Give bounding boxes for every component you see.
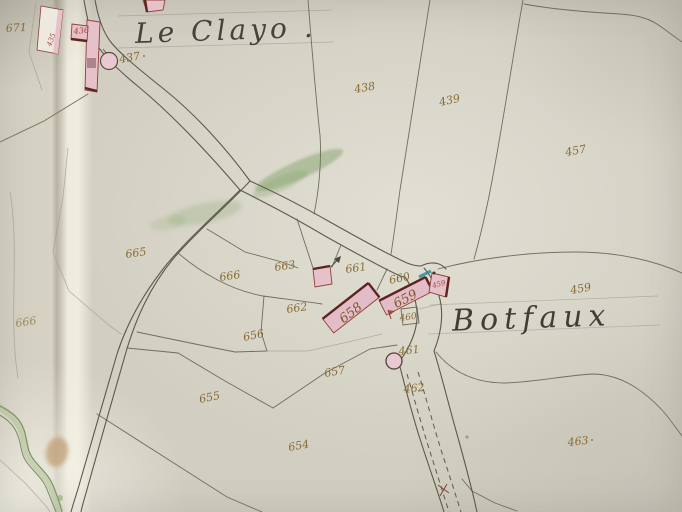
- parcel-line: [474, 0, 523, 259]
- parcel-number-label: 461: [397, 343, 420, 358]
- parcel-number-label: 463: [566, 434, 589, 449]
- parcel-line: [438, 252, 682, 273]
- parcel-line: [0, 94, 88, 142]
- map-canvas: Le Clayo . Botfaux 671 437 438 439 457 6…: [0, 0, 682, 512]
- road-edge: [81, 181, 250, 512]
- fold-crease-line: [53, 197, 121, 334]
- parcel-number-label: 438: [352, 80, 376, 97]
- paper-stain: [43, 435, 71, 469]
- pencil-line: [0, 460, 50, 512]
- parcel-number-label: 460: [398, 312, 418, 324]
- parcel-line: [97, 414, 262, 512]
- parcel-line: [178, 253, 322, 304]
- parcel-number-label: 660: [388, 270, 411, 287]
- parcel-number-label: 666: [219, 268, 242, 284]
- parcel-number-label: 671: [5, 21, 27, 35]
- fold-crease-line: [63, 148, 68, 197]
- ink-speck: [591, 439, 593, 441]
- parcel-line: [524, 4, 682, 42]
- parcel-line: [261, 296, 267, 351]
- paper-artifacts-group: [0, 10, 660, 512]
- road-edge: [240, 190, 405, 277]
- well-circle: [101, 53, 118, 70]
- parcel-line: [267, 334, 382, 351]
- cross-mark: [438, 484, 449, 496]
- building-number-smudge: [87, 58, 96, 68]
- parcel-line: [297, 219, 313, 268]
- parcel-line: [419, 304, 440, 309]
- parcel-number-label: 657: [323, 364, 346, 380]
- parcel-number-label: 654: [287, 438, 310, 454]
- parcel-number-label: 661: [345, 260, 368, 276]
- ink-dot: [433, 272, 436, 275]
- parcel-number-label: 459: [568, 281, 592, 298]
- parcel-number-label: 655: [198, 389, 221, 406]
- parcel-number-label: 462: [402, 381, 425, 396]
- left-page-faint-line: [10, 192, 18, 378]
- green-dot: [57, 495, 63, 501]
- parcel-line: [391, 0, 430, 254]
- ink-speck: [465, 435, 468, 438]
- parcel-number-label: 662: [286, 300, 309, 316]
- place-name-botfaux: Botfaux: [450, 298, 612, 339]
- parcel-line: [377, 269, 387, 290]
- parcel-number-label: 663: [274, 258, 297, 274]
- parcel-line: [436, 352, 682, 436]
- parcel-number-label: 437: [117, 50, 141, 67]
- parcel-number-label: 665: [125, 245, 148, 261]
- parcel-number-label: 439: [437, 92, 461, 109]
- parcel-number-label: 457: [563, 143, 587, 160]
- place-name-le-clayo: Le Clayo .: [133, 11, 317, 50]
- parcel-number-label: 656: [242, 327, 265, 344]
- ink-speck: [143, 55, 145, 57]
- parcel-number-label: 666: [15, 314, 38, 330]
- road-edge: [434, 351, 477, 512]
- buildings-group: [37, 0, 449, 369]
- building-number-label: 436: [72, 26, 89, 36]
- cadastral-map-sheet: Le Clayo . Botfaux 671 437 438 439 457 6…: [0, 0, 682, 512]
